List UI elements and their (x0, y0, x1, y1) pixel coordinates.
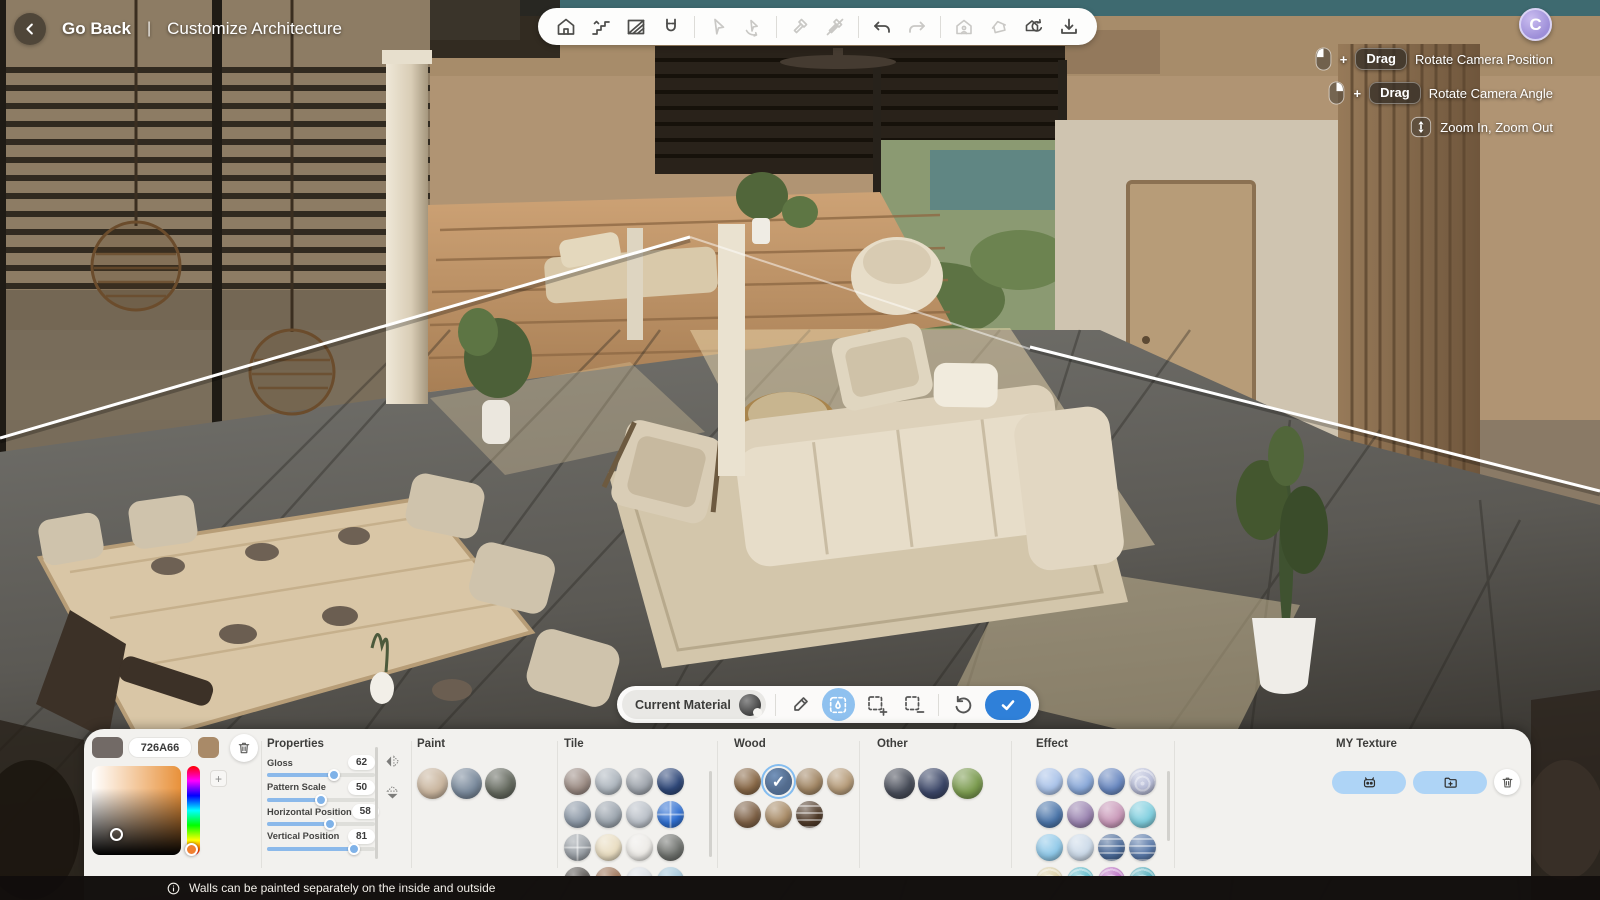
material-swatch[interactable] (1036, 768, 1063, 795)
material-swatch[interactable] (1098, 834, 1125, 861)
undo-button[interactable] (867, 12, 897, 42)
ai-texture-button[interactable] (1332, 771, 1406, 794)
reset-view-button[interactable] (1019, 12, 1049, 42)
toolbar-separator (694, 16, 695, 38)
property-label: Horizontal Position (267, 807, 352, 817)
property-slider[interactable] (267, 773, 375, 777)
material-sphere-icon (739, 694, 761, 716)
wall-paint-tool-button[interactable] (621, 12, 651, 42)
material-swatch[interactable] (1036, 801, 1063, 828)
hint-label: Rotate Camera Position (1415, 52, 1553, 67)
property-value: 62 (348, 755, 375, 770)
demolish-off-tool-button[interactable] (820, 12, 850, 42)
drag-key-badge: Drag (1355, 48, 1407, 70)
property-slider[interactable] (267, 847, 375, 851)
material-swatch[interactable] (451, 768, 482, 799)
current-material-button[interactable]: Current Material (622, 690, 766, 719)
material-swatch[interactable] (626, 768, 653, 795)
paint-section: Paint (417, 729, 547, 876)
demolish-tool-button[interactable] (785, 12, 815, 42)
material-swatch[interactable] (734, 801, 761, 828)
material-swatch[interactable] (952, 768, 983, 799)
other-section-title: Other (877, 738, 908, 750)
matbar-separator (775, 694, 776, 716)
save-button[interactable] (1054, 12, 1084, 42)
properties-scrollbar[interactable] (375, 747, 378, 859)
house-walkthrough-button[interactable] (949, 12, 979, 42)
hint-label: Rotate Camera Angle (1429, 86, 1553, 101)
stairs-tool-button[interactable] (586, 12, 616, 42)
property-value: 81 (348, 829, 375, 844)
hex-color-input[interactable] (128, 737, 192, 758)
confirm-button[interactable] (985, 690, 1031, 720)
redo-button[interactable] (902, 12, 932, 42)
app-window: Go Back | Customize Architecture C + (0, 0, 1600, 900)
material-swatch[interactable] (796, 768, 823, 795)
property-row: Pattern Scale50 (267, 780, 375, 805)
camera-hints: + Drag Rotate Camera Position + Drag Rot… (1315, 47, 1553, 139)
material-swatch[interactable] (657, 801, 684, 828)
header-bar: Go Back | Customize Architecture (14, 13, 342, 45)
hue-slider-knob[interactable] (185, 843, 198, 856)
drag-key-badge: Drag (1369, 82, 1421, 104)
top-toolbar (538, 8, 1097, 45)
my-texture-section: MY Texture (1332, 729, 1522, 876)
secondary-color-swatch[interactable] (198, 737, 219, 758)
flip-vertical-button[interactable] (384, 753, 401, 770)
tile-section: Tile (564, 729, 704, 876)
paint-swatches (417, 768, 516, 799)
property-slider[interactable] (267, 822, 375, 826)
material-swatch[interactable] (595, 768, 622, 795)
property-row: Gloss62 (267, 755, 375, 780)
properties-sliders: Gloss62Pattern Scale50Horizontal Positio… (267, 755, 375, 853)
material-swatch[interactable] (1067, 834, 1094, 861)
hint-rotate-angle: + Drag Rotate Camera Angle (1328, 81, 1553, 105)
hue-slider[interactable] (187, 766, 200, 855)
scroll-wheel-icon (1410, 116, 1432, 138)
property-slider-knob[interactable] (348, 843, 360, 855)
snap-magnet-tool-button[interactable] (656, 12, 686, 42)
material-swatch[interactable] (417, 768, 448, 799)
material-swatch[interactable] (1129, 867, 1156, 876)
properties-section: Properties Gloss62Pattern Scale50Horizon… (267, 729, 379, 876)
paint-area-button[interactable] (822, 688, 855, 721)
material-swatch[interactable] (1098, 801, 1125, 828)
wood-swatches (734, 768, 854, 828)
delete-color-button[interactable] (230, 734, 258, 762)
flip-horizontal-button[interactable] (384, 784, 401, 801)
footer-hint-bar: Walls can be painted separately on the i… (0, 876, 1600, 900)
property-row: Vertical Position81 (267, 829, 375, 854)
property-row: Horizontal Position58 (267, 804, 375, 829)
selection-add-button[interactable] (862, 690, 892, 720)
material-swatch[interactable] (626, 834, 653, 861)
material-swatch[interactable] (1129, 834, 1156, 861)
property-label: Vertical Position (267, 831, 339, 841)
plus-sign: + (1353, 86, 1361, 101)
property-value: 50 (348, 780, 375, 795)
toolbar-separator (940, 16, 941, 38)
page-title: Customize Architecture (167, 19, 342, 39)
material-panel: + Properties Gloss62Pattern Scale50Horiz… (84, 729, 1531, 876)
material-swatch[interactable] (564, 867, 591, 876)
material-swatch[interactable] (1129, 768, 1156, 795)
material-swatch[interactable] (485, 768, 516, 799)
app-logo-letter: C (1529, 15, 1541, 35)
material-swatch[interactable] (1129, 801, 1156, 828)
chevron-left-icon (21, 20, 39, 38)
color-picker: + (90, 729, 262, 876)
paint-section-title: Paint (417, 738, 445, 750)
material-swatch[interactable] (1067, 768, 1094, 795)
material-swatch[interactable] (827, 768, 854, 795)
properties-title: Properties (267, 738, 324, 750)
current-material-label: Current Material (635, 698, 731, 712)
material-swatch[interactable] (1098, 768, 1125, 795)
material-swatch[interactable] (1067, 801, 1094, 828)
toolbar-separator (776, 16, 777, 38)
mouse-left-button-icon (1315, 47, 1332, 71)
hint-rotate-position: + Drag Rotate Camera Position (1315, 47, 1553, 71)
trash-icon (236, 740, 252, 756)
effect-swatches (1036, 768, 1156, 876)
hint-zoom: Zoom In, Zoom Out (1410, 115, 1553, 139)
tile-swatches (564, 768, 684, 876)
home-tool-button[interactable] (551, 12, 581, 42)
folder-plus-icon (1442, 774, 1459, 791)
material-swatch[interactable] (918, 768, 949, 799)
matbar-separator (938, 694, 939, 716)
material-swatch[interactable] (765, 801, 792, 828)
material-swatch[interactable] (564, 834, 591, 861)
other-section: Other (877, 729, 1007, 876)
trash-icon (1500, 775, 1515, 790)
wood-section-title: Wood (734, 738, 766, 750)
app-logo[interactable]: C (1519, 8, 1552, 41)
current-color-swatch (92, 737, 123, 758)
reset-material-button[interactable] (948, 690, 978, 720)
header-separator: | (147, 20, 151, 38)
effect-section-title: Effect (1036, 738, 1068, 750)
material-swatch[interactable] (626, 801, 653, 828)
hint-label: Zoom In, Zoom Out (1440, 120, 1553, 135)
material-swatch[interactable] (1067, 867, 1094, 876)
material-swatch[interactable] (1036, 867, 1063, 876)
my-texture-title: MY Texture (1336, 738, 1397, 750)
wood-section: Wood (734, 729, 864, 876)
material-swatch[interactable] (657, 867, 684, 876)
toolbar-separator (858, 16, 859, 38)
property-slider[interactable] (267, 798, 375, 802)
flip-controls (384, 753, 401, 801)
material-toolbar: Current Material (617, 686, 1039, 723)
other-swatches (884, 768, 983, 799)
rotate-object-tool-button[interactable] (738, 12, 768, 42)
material-swatch[interactable] (657, 834, 684, 861)
add-color-button[interactable]: + (210, 770, 227, 787)
tile-section-title: Tile (564, 738, 584, 750)
material-swatch[interactable] (1098, 867, 1125, 876)
effect-scrollbar[interactable] (1167, 771, 1170, 841)
effect-section: Effect (1036, 729, 1166, 876)
material-swatch[interactable] (884, 768, 915, 799)
color-picker-knob[interactable] (110, 828, 123, 841)
saturation-value-picker[interactable] (92, 766, 181, 855)
material-swatch[interactable] (626, 867, 653, 876)
material-swatch[interactable] (1036, 834, 1063, 861)
property-label: Pattern Scale (267, 782, 326, 792)
roof-toggle-button[interactable] (984, 12, 1014, 42)
selection-remove-button[interactable] (899, 690, 929, 720)
material-swatch[interactable] (595, 834, 622, 861)
go-back-button[interactable] (14, 13, 46, 45)
go-back-label[interactable]: Go Back (62, 19, 131, 39)
material-swatch[interactable] (564, 801, 591, 828)
material-swatch[interactable] (796, 801, 823, 828)
mouse-right-button-icon (1328, 81, 1345, 105)
footer-note: Walls can be painted separately on the i… (189, 881, 495, 895)
material-swatch[interactable] (765, 768, 792, 795)
material-swatch[interactable] (657, 768, 684, 795)
material-swatch[interactable] (564, 768, 591, 795)
tile-scrollbar[interactable] (709, 771, 712, 857)
info-icon (166, 881, 181, 896)
material-swatch[interactable] (595, 801, 622, 828)
delete-texture-button[interactable] (1494, 769, 1520, 795)
material-swatch[interactable] (595, 867, 622, 876)
check-icon (997, 694, 1019, 716)
import-texture-button[interactable] (1413, 771, 1487, 794)
material-swatch[interactable] (734, 768, 761, 795)
material-dropper-button[interactable] (785, 690, 815, 720)
plus-sign: + (1340, 52, 1348, 67)
robot-icon (1361, 774, 1378, 791)
property-label: Gloss (267, 758, 293, 768)
select-cursor-tool-button[interactable] (703, 12, 733, 42)
